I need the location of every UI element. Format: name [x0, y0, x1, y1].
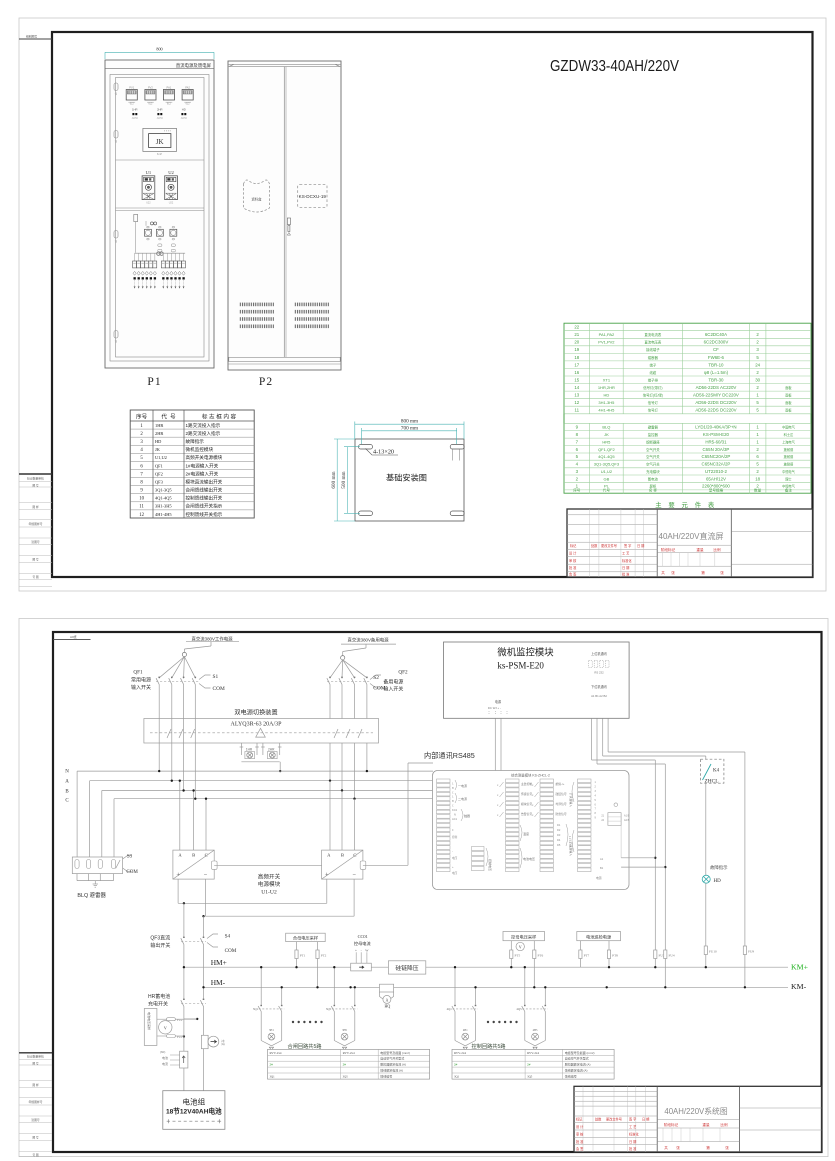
svg-text:PV1: PV1: [129, 85, 134, 89]
svg-text:3Q1-3Q5,QF3: 3Q1-3Q5,QF3: [594, 462, 620, 467]
svg-text:二电源: 二电源: [458, 796, 467, 801]
svg-text:PT8: PT8: [612, 953, 618, 957]
svg-text:U22: U22: [169, 201, 174, 204]
svg-text:QF3: QF3: [155, 479, 164, 484]
svg-text:4H1-4H5: 4H1-4H5: [155, 512, 172, 517]
svg-text:直流电压表: 直流电压表: [644, 340, 662, 345]
svg-text:B: B: [452, 787, 454, 790]
svg-text:模块直流输出开关: 模块直流输出开关: [186, 478, 223, 485]
svg-text:脱扣器额定电流 (A): 脱扣器额定电流 (A): [565, 1062, 591, 1067]
svg-text:6L2: 6L2: [130, 103, 135, 106]
svg-text:AD56-22DS DC220V: AD56-22DS DC220V: [695, 408, 736, 413]
svg-text:C65NC32A/2P: C65NC32A/2P: [702, 462, 731, 467]
svg-text:12: 12: [574, 400, 579, 405]
svg-text:下位机通讯: 下位机通讯: [591, 684, 608, 689]
svg-text:11: 11: [575, 408, 580, 413]
svg-text:审 核: 审 核: [569, 558, 577, 563]
svg-text:A1 B1 A2 B2: A1 B1 A2 B2: [591, 694, 607, 698]
svg-text:标记: 标记: [576, 1117, 583, 1122]
svg-text:3Q1-3Q5: 3Q1-3Q5: [155, 488, 172, 493]
svg-text:脱扣器额定电流 (A): 脱扣器额定电流 (A): [380, 1062, 406, 1067]
svg-text:签 字: 签 字: [624, 543, 631, 548]
svg-text:图 号: 图 号: [32, 1136, 39, 1140]
svg-text:UT22010-2: UT22010-2: [705, 469, 728, 474]
svg-text:KM-: KM-: [791, 982, 807, 991]
svg-text:号 图: 号 图: [32, 575, 39, 579]
svg-text:标记数量审核: 标记数量审核: [27, 1055, 44, 1059]
svg-text:QF2: QF2: [155, 471, 163, 476]
svg-text:P2: P2: [259, 376, 273, 388]
svg-text:6L2: 6L2: [167, 103, 172, 106]
svg-text:标准化: 标准化: [629, 1132, 639, 1137]
svg-text:-: -: [361, 949, 362, 953]
svg-text:张: 张: [725, 1145, 729, 1150]
svg-text:1HR: 1HR: [246, 748, 253, 752]
svg-text:张: 张: [720, 570, 724, 575]
svg-text:工 艺: 工 艺: [629, 1124, 636, 1129]
svg-text:HR5: HR5: [602, 439, 611, 444]
svg-text:KS-PSM-E20: KS-PSM-E20: [703, 432, 730, 437]
svg-text:RVV-2x4: RVV-2x4: [454, 1051, 466, 1055]
svg-text:基础安装图: 基础安装图: [386, 473, 427, 483]
svg-text:1#电源输入开关: 1#电源输入开关: [186, 462, 219, 469]
svg-text:4H1: 4H1: [463, 1029, 468, 1032]
svg-text:2#: 2#: [270, 1063, 274, 1067]
svg-text:均浮信号: 均浮信号: [556, 802, 567, 806]
svg-text:GZDW33-40AH/220V: GZDW33-40AH/220V: [550, 58, 680, 75]
svg-text:K4: K4: [713, 769, 720, 774]
svg-text:PA2: PA2: [185, 85, 190, 89]
svg-text:3H1: 3H1: [269, 1029, 274, 1032]
svg-text:18: 18: [574, 355, 579, 360]
svg-text:22: 22: [574, 325, 579, 330]
svg-text:更改文件号: 更改文件号: [601, 543, 617, 548]
svg-text:熔断器座: 熔断器座: [646, 439, 660, 444]
svg-text:D1: D1: [557, 823, 561, 827]
svg-text:标 志 框 内 容: 标 志 框 内 容: [202, 412, 237, 420]
svg-text:第: 第: [706, 1145, 710, 1150]
svg-text:D2: D2: [557, 828, 561, 832]
svg-text:电源: 电源: [596, 876, 602, 880]
svg-text:HM-: HM-: [211, 978, 226, 987]
svg-text:空气开关: 空气开关: [646, 447, 660, 452]
svg-text:电池巡检电源: 电池巡检电源: [586, 933, 612, 940]
svg-text:自动空气开关型式: 自动空气开关型式: [380, 1056, 404, 1061]
svg-text:20: 20: [574, 340, 579, 345]
svg-text:电缆型号及截面 (mm²): 电缆型号及截面 (mm²): [380, 1050, 410, 1055]
svg-text:批 准: 批 准: [629, 1146, 637, 1151]
svg-text:AD56-22SM/Y DC220V: AD56-22SM/Y DC220V: [693, 393, 739, 398]
svg-text:RVV-2x4: RVV-2x4: [527, 1051, 539, 1055]
svg-text:控制馈线输出开关: 控制馈线输出开关: [186, 495, 223, 502]
svg-text:控母电压采样: 控母电压采样: [511, 933, 536, 940]
svg-text:图 号: 图 号: [32, 484, 39, 488]
svg-text:4H1-4H5: 4H1-4H5: [598, 408, 615, 413]
svg-text:FU9: FU9: [748, 949, 754, 953]
svg-text:COM: COM: [225, 948, 237, 954]
svg-text:COM: COM: [126, 870, 138, 875]
svg-text:HR5-60/31: HR5-60/31: [705, 439, 727, 444]
svg-text:电池电压采样: 电池电压采样: [147, 1012, 152, 1030]
svg-text:标准化: 标准化: [622, 558, 632, 563]
svg-text:BLQ: BLQ: [602, 425, 610, 430]
svg-text:4Q1-4Q5: 4Q1-4Q5: [598, 454, 615, 459]
svg-text:P1: P1: [147, 376, 161, 388]
svg-text:名 称: 名 称: [649, 488, 658, 493]
svg-text:D4: D4: [557, 838, 561, 842]
svg-text:A1 B: A1 B: [624, 815, 630, 818]
svg-text:LYD1/20-40KA/3P+N: LYD1/20-40KA/3P+N: [695, 425, 736, 430]
svg-text:充电开关: 充电开关: [148, 1001, 168, 1008]
svg-text:年规图样号: 年规图样号: [29, 522, 43, 526]
svg-text:6C2DC300V: 6C2DC300V: [704, 340, 729, 345]
svg-text:A0纸: A0纸: [70, 634, 77, 639]
svg-text:微机监控模块: 微机监控模块: [497, 646, 554, 657]
svg-text:熔断器: 熔断器: [648, 355, 659, 360]
svg-text:B: B: [452, 800, 454, 803]
svg-text:C: C: [353, 853, 356, 858]
svg-text:信号灯: 信号灯: [648, 408, 659, 413]
svg-text:11: 11: [139, 505, 144, 510]
svg-text:3Q1: 3Q1: [253, 1007, 259, 1011]
svg-text:高频开关电源模块: 高频开关电源模块: [186, 454, 223, 461]
svg-text:12: 12: [139, 513, 144, 518]
svg-text:批 准: 批 准: [569, 565, 577, 570]
svg-text:BLQ 避雷器: BLQ 避雷器: [77, 891, 106, 899]
svg-text:共: 共: [661, 570, 665, 575]
svg-text:+: +: [325, 872, 329, 879]
svg-text:S1: S1: [213, 674, 219, 680]
svg-text:FW6E-6: FW6E-6: [708, 355, 725, 360]
svg-text:组别图号: 组别图号: [26, 35, 37, 39]
svg-text:微机监控模块: 微机监控模块: [186, 446, 214, 453]
svg-text:30: 30: [755, 377, 760, 382]
svg-text:合闸回路共5路: 合闸回路共5路: [288, 1042, 323, 1050]
svg-text:电缆型号及截面 (mm²): 电缆型号及截面 (mm²): [565, 1050, 595, 1055]
svg-text:端子排: 端子排: [648, 377, 659, 382]
svg-text:2路交流投入指示: 2路交流投入指示: [186, 430, 221, 437]
svg-text:U2: U2: [168, 170, 174, 175]
svg-text:1HR: 1HR: [155, 423, 163, 428]
svg-text:-: -: [452, 849, 453, 853]
svg-text:理士: 理士: [785, 476, 792, 481]
svg-text:直流电源及馈电屏: 直流电源及馈电屏: [176, 62, 212, 69]
svg-text:A: A: [386, 998, 389, 1002]
svg-text:合闸馈线开关指示: 合闸馈线开关指示: [186, 503, 223, 510]
svg-text:HM+: HM+: [211, 958, 227, 967]
svg-text:2HR: 2HR: [155, 431, 163, 436]
svg-text:14: 14: [574, 385, 579, 390]
svg-text:直交流380V工作电源: 直交流380V工作电源: [192, 635, 234, 642]
svg-text:硅链信号: 硅链信号: [556, 792, 567, 796]
svg-text:馈线额定电流 (A): 馈线额定电流 (A): [380, 1068, 403, 1073]
svg-text:线缆: 线缆: [649, 370, 656, 375]
svg-text:传感信号: 传感信号: [521, 792, 532, 796]
svg-text:6C2DC40A: 6C2DC40A: [705, 332, 727, 337]
svg-text:C65N 20A/3P: C65N 20A/3P: [703, 447, 730, 452]
svg-text:QF1: QF1: [155, 463, 163, 468]
svg-text:3Q5: 3Q5: [326, 1007, 332, 1011]
svg-text:CC01: CC01: [358, 934, 368, 939]
svg-text:阶段标记: 阶段标记: [661, 547, 676, 552]
svg-text:ks-PSM-E20: ks-PSM-E20: [497, 660, 544, 670]
svg-text:控制电压: 控制电压: [488, 859, 493, 871]
svg-text:数量: 数量: [754, 488, 762, 493]
svg-text:HD: HD: [714, 879, 722, 884]
svg-text:500 mm: 500 mm: [341, 471, 347, 488]
svg-text:700 mm: 700 mm: [401, 425, 418, 431]
svg-text:(60): (60): [160, 1050, 165, 1054]
svg-text:一电源: 一电源: [458, 783, 467, 788]
svg-text:输入开关: 输入开关: [383, 686, 403, 693]
svg-text:工 艺: 工 艺: [622, 550, 629, 555]
svg-text:16: 16: [574, 370, 579, 375]
svg-text:40AH/220V系统图: 40AH/220V系统图: [664, 1106, 727, 1116]
svg-text:代 号: 代 号: [161, 412, 176, 420]
svg-text:D3: D3: [557, 833, 561, 837]
svg-text:施耐德: 施耐德: [784, 462, 794, 467]
svg-text:2#: 2#: [343, 1063, 347, 1067]
svg-text:施耐德: 施耐德: [784, 447, 794, 452]
svg-text:JK: JK: [604, 432, 609, 437]
svg-text:COM: COM: [213, 686, 225, 692]
svg-text:处数: 处数: [595, 1117, 602, 1122]
svg-text:JK: JK: [156, 138, 164, 146]
svg-text:S4: S4: [225, 933, 231, 939]
svg-text:信号灯(红/绿): 信号灯(红/绿): [643, 393, 663, 398]
svg-text:绝缘-/+: 绝缘-/+: [556, 782, 565, 786]
svg-text:6L2: 6L2: [148, 103, 153, 106]
svg-text:电源: 电源: [495, 699, 502, 704]
svg-text:−: −: [352, 872, 356, 879]
svg-text:3Q5: 3Q5: [527, 1074, 533, 1078]
svg-text:U1-U2: U1-U2: [261, 889, 277, 895]
svg-text:CF: CF: [713, 347, 719, 352]
svg-text:S2: S2: [373, 675, 379, 681]
svg-text:4-13×20: 4-13×20: [373, 449, 394, 456]
svg-text:C: C: [452, 791, 454, 794]
svg-text:U22: U22: [146, 201, 151, 204]
svg-text:面板: 面板: [785, 400, 792, 405]
svg-text:TBR-30: TBR-30: [708, 377, 724, 382]
svg-text:JK: JK: [155, 447, 161, 452]
svg-text:标记数量审核: 标记数量审核: [27, 476, 44, 480]
svg-text:代号: 代号: [603, 488, 611, 493]
svg-text:审 核: 审 核: [576, 1132, 584, 1137]
svg-text:600 mm: 600 mm: [331, 471, 337, 488]
svg-text:ALYQ3R-63 20A/3P: ALYQ3R-63 20A/3P: [231, 721, 283, 727]
svg-text:6L2: 6L2: [186, 103, 191, 106]
svg-text:张: 张: [671, 570, 675, 575]
svg-text:合闸馈线输出开关: 合闸馈线输出开关: [186, 487, 223, 494]
svg-text:QF3直流: QF3直流: [150, 935, 170, 942]
svg-text:中恒电气: 中恒电气: [782, 469, 796, 474]
svg-text:HR蓄电池: HR蓄电池: [148, 993, 170, 1000]
svg-text:电流: 电流: [162, 1061, 168, 1066]
svg-text:日 期: 日 期: [622, 565, 629, 570]
svg-text:N: N: [454, 813, 456, 817]
svg-text:C65NC20A/2P: C65NC20A/2P: [702, 454, 731, 459]
svg-text:ZHCL: ZHCL: [705, 779, 719, 785]
svg-text:U1,U2: U1,U2: [601, 469, 613, 474]
svg-text:型号规格: 型号规格: [709, 488, 724, 493]
svg-text:故障指示: 故障指示: [186, 438, 205, 445]
svg-text:比例: 比例: [713, 547, 721, 552]
svg-text:处数: 处数: [591, 543, 598, 548]
svg-text:HQ: HQ: [385, 1004, 391, 1009]
svg-text:图 样: 图 样: [32, 505, 39, 509]
svg-text:电源模块: 电源模块: [258, 880, 281, 888]
svg-text:KS-DCXU-19: KS-DCXU-19: [299, 194, 327, 199]
svg-text:面板: 面板: [785, 408, 792, 413]
svg-text:共: 共: [664, 1145, 668, 1150]
svg-text:HD: HD: [604, 393, 610, 398]
svg-text:TBR-10: TBR-10: [708, 362, 724, 367]
svg-text:24: 24: [755, 362, 760, 367]
svg-text:日 期: 日 期: [637, 543, 644, 548]
svg-text:A: A: [65, 780, 69, 785]
svg-text:序号: 序号: [573, 488, 581, 493]
svg-text:张: 张: [676, 1145, 680, 1150]
svg-text:空气开关: 空气开关: [646, 454, 660, 459]
svg-text:RVV-2x4: RVV-2x4: [343, 1051, 355, 1055]
svg-text:COM: COM: [373, 685, 385, 691]
svg-text:18: 18: [755, 476, 760, 481]
svg-text:PV1,PV2: PV1,PV2: [598, 340, 615, 345]
svg-text:KC2: KC2: [452, 808, 458, 812]
svg-text:40AH/220V直流屏: 40AH/220V直流屏: [659, 531, 724, 541]
svg-text:控制回路共5路: 控制回路共5路: [472, 1042, 507, 1050]
svg-text:13: 13: [574, 393, 579, 398]
svg-text:2#: 2#: [527, 1063, 531, 1067]
svg-text:RS 232: RS 232: [594, 671, 604, 675]
svg-text:重量: 重量: [702, 1122, 710, 1127]
svg-text:QF1: QF1: [133, 670, 143, 676]
svg-text:会 签: 会 签: [576, 1146, 584, 1151]
svg-text:B1: B1: [600, 866, 604, 870]
svg-text:备用电源: 备用电源: [383, 679, 403, 686]
svg-text:比例: 比例: [720, 1122, 728, 1127]
svg-text:流图号: 流图号: [31, 1118, 40, 1122]
svg-text:+: +: [176, 872, 180, 879]
svg-text:GB: GB: [604, 476, 610, 481]
svg-text:面板: 面板: [785, 393, 792, 398]
svg-text:合母电压采样: 合母电压采样: [293, 935, 318, 942]
svg-text:主 要 元 件 表: 主 要 元 件 表: [655, 500, 717, 509]
svg-text:A2 B: A2 B: [624, 819, 630, 822]
svg-text:PA1,PA2: PA1,PA2: [599, 332, 615, 337]
svg-text:分流: 分流: [221, 1040, 226, 1046]
svg-text:第: 第: [701, 570, 705, 575]
svg-text:+: +: [355, 949, 357, 953]
svg-text:空气开关: 空气开关: [646, 462, 660, 467]
svg-text:PT1: PT1: [300, 953, 306, 957]
svg-text:PV2: PV2: [148, 85, 153, 89]
svg-text:常用电源: 常用电源: [131, 677, 151, 684]
svg-text:控母电流: 控母电流: [354, 940, 372, 947]
svg-text:面板: 面板: [785, 385, 792, 390]
svg-text:2#: 2#: [454, 1063, 458, 1067]
svg-text:防雷信号: 防雷信号: [556, 812, 567, 816]
svg-text:−: −: [204, 872, 208, 879]
svg-text:FU4: FU4: [669, 953, 675, 957]
svg-text:触器: 触器: [464, 813, 470, 818]
svg-text:科士达: 科士达: [784, 432, 794, 437]
svg-text:FU2: FU2: [177, 1018, 183, 1022]
svg-text:1路交流投入指示: 1路交流投入指示: [186, 422, 221, 429]
svg-text:重量: 重量: [696, 547, 704, 552]
svg-text:3H1-3H5: 3H1-3H5: [155, 504, 172, 509]
svg-text:RVV-2x4: RVV-2x4: [270, 1051, 282, 1055]
svg-text:V: V: [519, 946, 522, 950]
svg-text:直交流380V备用电源: 直交流380V备用电源: [348, 637, 390, 644]
svg-text:C: C: [452, 805, 454, 808]
svg-text:监控器: 监控器: [648, 432, 659, 437]
svg-text:备注: 备注: [785, 488, 793, 493]
svg-text:控制馈线开关指示: 控制馈线开关指示: [186, 511, 223, 518]
svg-text:AD56-22DS DC220V: AD56-22DS DC220V: [695, 400, 736, 405]
svg-text:高频开关: 高频开关: [258, 873, 281, 881]
svg-text:号 图: 号 图: [32, 1153, 39, 1157]
svg-text:FU1: FU1: [177, 1035, 183, 1039]
svg-text:序号: 序号: [136, 412, 148, 420]
svg-text:蓄电池: 蓄电池: [648, 476, 659, 481]
svg-text:信号灯(带灯): 信号灯(带灯): [643, 385, 662, 390]
svg-text:U1: U1: [146, 170, 152, 175]
svg-text:直流电流表: 直流电流表: [644, 332, 662, 337]
svg-text:3H1-3H5: 3H1-3H5: [598, 400, 615, 405]
svg-text:上海电气: 上海电气: [782, 439, 796, 444]
svg-text:输出开关: 输出开关: [150, 942, 170, 949]
svg-text:电压: 电压: [452, 856, 458, 860]
svg-text:PT6: PT6: [538, 953, 544, 957]
svg-text:告警信号: 告警信号: [521, 812, 532, 816]
svg-text:HD: HD: [155, 439, 161, 444]
svg-text:设 计: 设 计: [576, 1124, 584, 1129]
svg-text:XT1: XT1: [603, 377, 611, 382]
svg-text:800 mm: 800 mm: [401, 419, 418, 425]
svg-text:会 签: 会 签: [569, 571, 577, 576]
svg-text:双电源切换装置: 双电源切换装置: [234, 709, 277, 717]
svg-text:馈线编号: 馈线编号: [565, 1073, 577, 1078]
svg-text:硅链降压: 硅链降压: [395, 964, 418, 972]
svg-text:故障指示: 故障指示: [710, 864, 728, 871]
svg-text:控制: 控制: [452, 835, 458, 839]
svg-text:3H5: 3H5: [342, 1029, 347, 1032]
svg-text:图 号: 图 号: [32, 558, 39, 562]
svg-text:签 字: 签 字: [629, 1117, 636, 1122]
svg-text:4Q1-4Q5: 4Q1-4Q5: [155, 496, 172, 501]
svg-text:开关量输入: 开关量输入: [569, 793, 573, 807]
svg-text:S3: S3: [127, 854, 133, 859]
svg-text:2HR: 2HR: [268, 748, 275, 752]
svg-text:图 号: 图 号: [32, 1062, 39, 1066]
svg-text:端子: 端子: [649, 362, 656, 367]
svg-text:FU10: FU10: [709, 949, 717, 953]
svg-text:自动空气开关型式: 自动空气开关型式: [565, 1056, 589, 1061]
svg-text:B: B: [192, 853, 195, 858]
svg-text:阶段标记: 阶段标记: [664, 1122, 679, 1127]
svg-text:AD56-22DS AC220V: AD56-22DS AC220V: [696, 385, 737, 390]
svg-text:15: 15: [574, 377, 579, 382]
svg-text:19: 19: [574, 347, 579, 352]
svg-text:AD56: AD56: [132, 117, 139, 120]
svg-text:QF2: QF2: [398, 670, 408, 676]
svg-text:内部通讯RS485: 内部通讯RS485: [424, 751, 475, 760]
svg-text:电压: 电压: [452, 871, 458, 875]
svg-text:PT5: PT5: [515, 953, 521, 957]
svg-text:年规图样号: 年规图样号: [29, 1100, 43, 1104]
